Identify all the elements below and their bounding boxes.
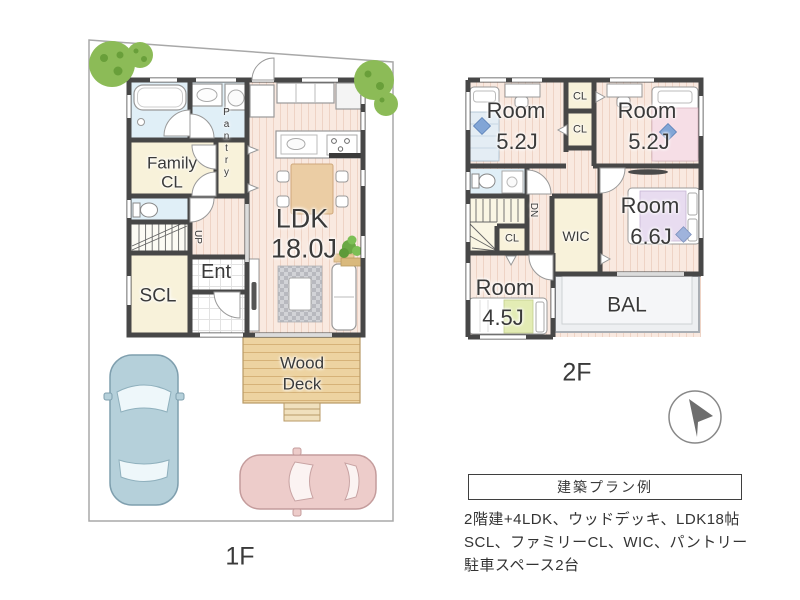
room-label-scl: SCL [140,287,177,306]
info-box-line1: 2階建+4LDK、ウッドデッキ、LDK18帖 [464,508,740,529]
wood-deck-label-1: Wood [280,355,324,372]
car-pink-icon [240,448,376,516]
car-blue-icon [104,355,184,505]
room-nw-name: Room [487,100,546,122]
washstand-icon [192,84,247,110]
info-box-title: 建築プラン例 [557,477,653,497]
room-e-name: Room [621,195,680,217]
closet-nw-lower-label: CL [573,125,587,136]
stairs-dn-label: DN [528,203,538,217]
toilet-1f-icon [133,203,158,217]
room-e-size: 6.6J [630,226,672,248]
room-ne-size: 5.2J [628,131,670,153]
info-box-title-frame: 建築プラン例 [468,474,742,500]
floor1-label: 1F [225,545,254,570]
closet-stairs-label: CL [505,234,519,245]
wood-deck-label-2: Deck [283,376,322,393]
room-label-ent: Ent [201,262,231,282]
stairs-up-label: UP [192,230,202,244]
floor2-label: 2F [562,361,591,386]
room-label-family-cl-2: CL [161,174,183,191]
room-size-ldk: 18.0J [271,236,337,263]
room-ne-name: Room [618,100,677,122]
room-label-ldk: LDK [276,206,329,233]
info-box-line3: 駐車スペース2台 [464,554,580,575]
room-nw-size: 5.2J [496,131,538,153]
compass-icon [669,391,721,443]
floor-plan-page: Family CL Pantry LDK 18.0J UP Ent SCL Wo… [0,0,800,600]
closet-nw-upper-label: CL [573,92,587,103]
room-label-family-cl-1: Family [147,155,197,172]
info-box-line2: SCL、ファミリーCL、WIC、パントリー [464,531,748,552]
balcony-label: BAL [607,295,647,316]
room-sw-size: 4.5J [482,307,524,329]
room-sw-name: Room [476,277,535,299]
room-label-pantry: Pantry [221,107,231,179]
wic-label: WIC [562,229,589,243]
